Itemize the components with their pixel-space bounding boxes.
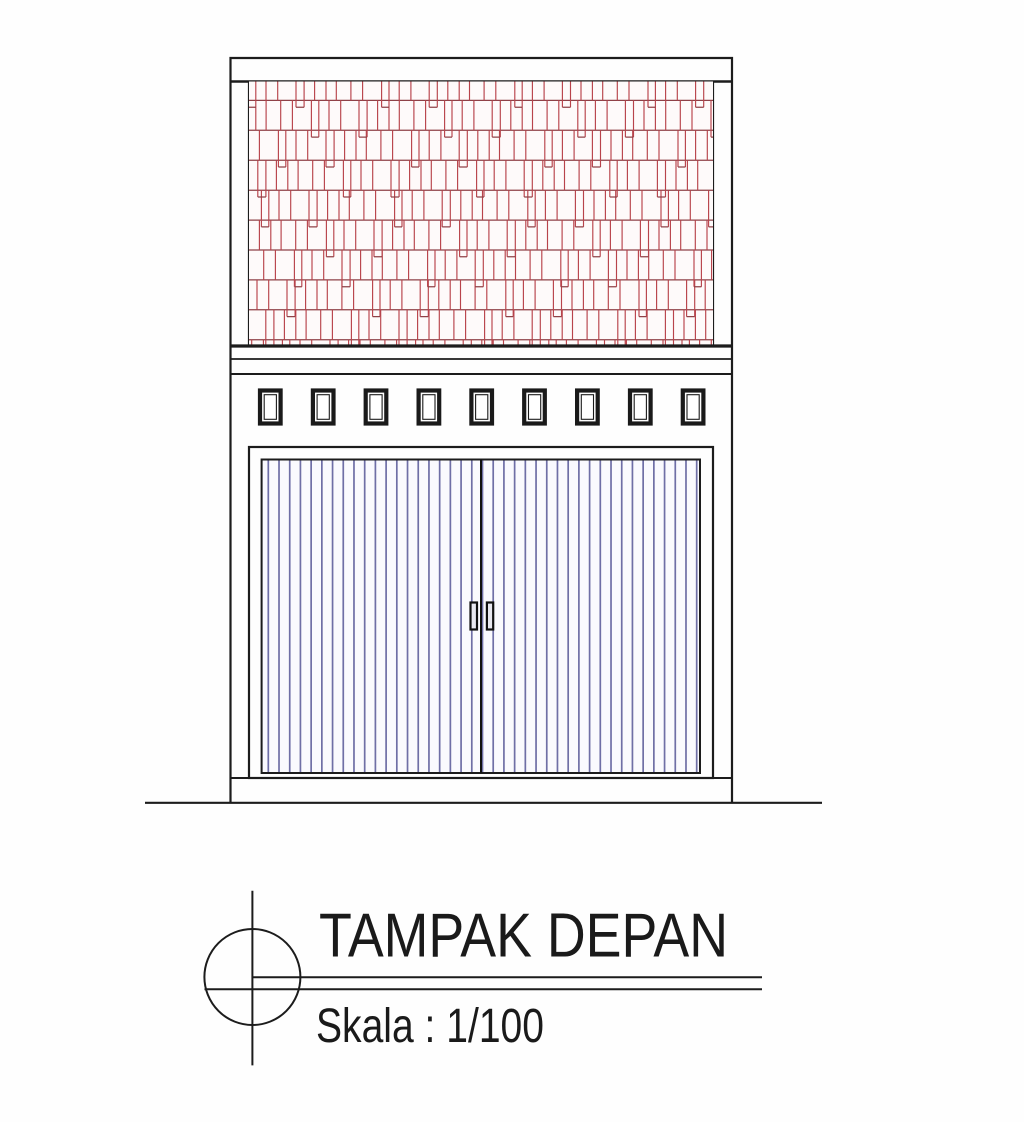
svg-text:TAMPAK DEPAN: TAMPAK DEPAN xyxy=(319,901,728,971)
svg-text:Skala : 1/100: Skala : 1/100 xyxy=(316,999,544,1053)
